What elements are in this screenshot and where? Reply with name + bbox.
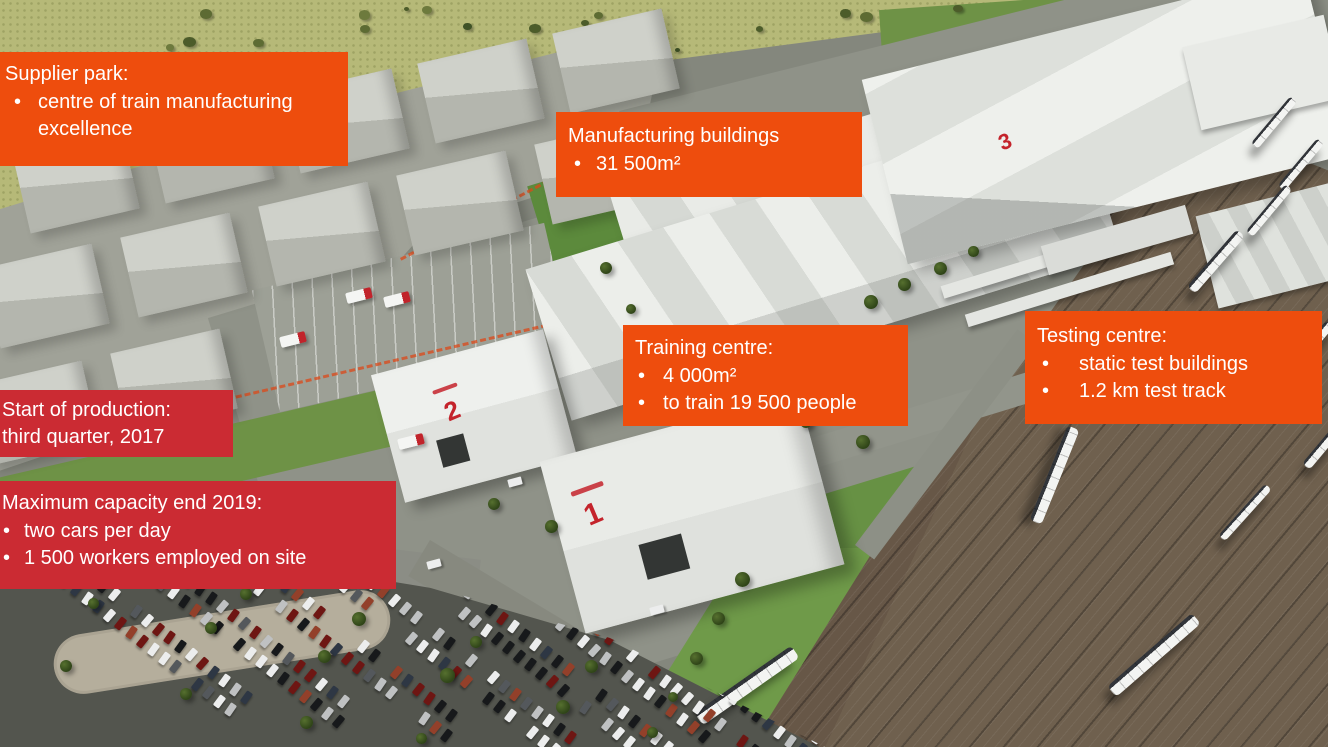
tree (352, 612, 366, 626)
tree (440, 668, 455, 683)
tree (556, 700, 570, 714)
building-2-door (436, 433, 470, 467)
callout-bullet: 1 500 workers employed on site (2, 545, 388, 572)
callout-maximum-capacity: Maximum capacity end 2019: two cars per … (0, 481, 396, 589)
building-1-number: 1 (579, 496, 608, 534)
callout-line: Start of production: (2, 397, 225, 424)
company-logo (570, 481, 604, 497)
callout-title: Manufacturing buildings (568, 123, 850, 150)
callout-title: Supplier park: (5, 61, 338, 88)
tree (205, 622, 217, 634)
callout-start-of-production: Start of production: third quarter, 2017 (0, 390, 233, 457)
tree (240, 588, 252, 600)
field-bush (200, 9, 212, 18)
field-bush (422, 6, 432, 14)
callout-bullet: 4 000m² (635, 363, 896, 390)
tree (647, 727, 658, 738)
tree (300, 716, 313, 729)
callout-bullet: to train 19 500 people (635, 390, 896, 417)
tree (585, 660, 598, 673)
callout-title: Maximum capacity end 2019: (2, 490, 388, 517)
tree (864, 295, 878, 309)
callout-bullet: centre of train manufacturing excellence (5, 89, 338, 143)
callout-testing-centre: Testing centre: static test buildings 1.… (1025, 311, 1322, 424)
tree (968, 246, 979, 257)
callout-supplier-park: Supplier park: centre of train manufactu… (0, 52, 348, 166)
callout-title: Testing centre: (1037, 323, 1310, 350)
tree (470, 636, 482, 648)
callout-title: Training centre: (635, 335, 896, 362)
field-bush (860, 12, 873, 22)
company-logo (432, 382, 458, 395)
tree (488, 498, 500, 510)
callout-line: third quarter, 2017 (2, 424, 225, 451)
callout-training-centre: Training centre: 4 000m² to train 19 500… (623, 325, 908, 426)
tree (600, 262, 612, 274)
building-3-number: 3 (995, 128, 1016, 157)
callout-bullet: 1.2 km test track (1037, 378, 1310, 405)
callout-bullet: two cars per day (2, 518, 388, 545)
callout-bullet: static test buildings (1037, 351, 1310, 378)
field-bush (253, 39, 264, 48)
field-bush (840, 9, 851, 17)
tree (898, 278, 911, 291)
callout-bullet: 31 500m² (568, 151, 850, 178)
tree (735, 572, 750, 587)
field-bush (463, 23, 471, 30)
field-bush (359, 10, 371, 19)
callout-manufacturing-buildings: Manufacturing buildings 31 500m² (556, 112, 862, 197)
field-bush (953, 5, 963, 13)
tree (856, 435, 870, 449)
field-bush (529, 24, 540, 33)
building-1-door (638, 534, 690, 580)
building-2-number: 2 (439, 394, 464, 428)
factory-site-slide: 3 2 1 Supplier park: centre of train man… (0, 0, 1328, 747)
tree (545, 520, 558, 533)
tree (416, 733, 427, 744)
tree (180, 688, 192, 700)
